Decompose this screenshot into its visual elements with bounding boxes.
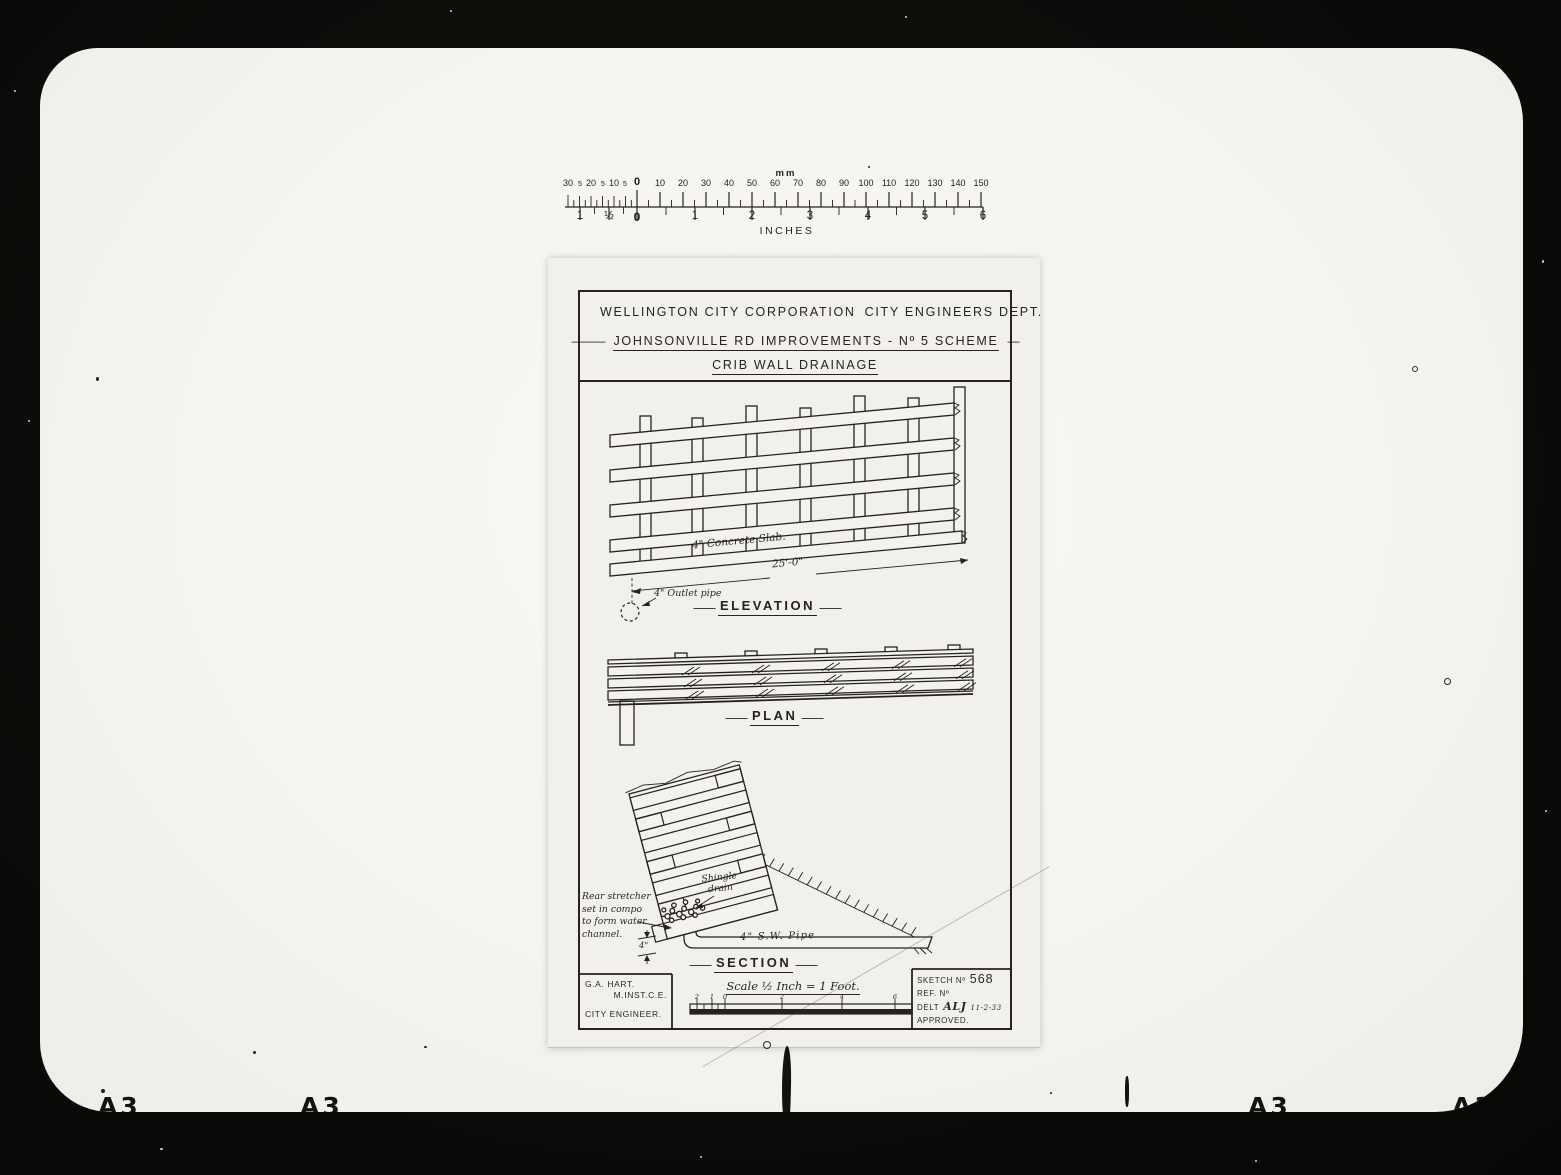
ruler-mm-tick-label: 5 xyxy=(601,181,605,188)
section-label: — SECTION — xyxy=(694,955,813,973)
elevation-label: — ELEVATION — xyxy=(698,598,837,616)
ruler-mm-tick-label: 20 xyxy=(678,178,688,188)
plan-label: — PLAN — xyxy=(730,708,819,726)
dust-speck xyxy=(101,1089,105,1093)
note-line: to form water xyxy=(582,916,651,929)
scalebar-tick-label: 0 xyxy=(723,993,727,1001)
dash-ornament: — xyxy=(796,957,818,972)
ruler-mm-tick-label: 50 xyxy=(747,178,757,188)
ruler-mm-tick-label: 130 xyxy=(927,178,942,188)
engineer-title: CITY ENGINEER. xyxy=(585,1009,669,1019)
delt-label: DELT xyxy=(917,1003,939,1012)
ruler-mm-tick-label: 90 xyxy=(839,178,849,188)
ruler-mm-tick-label: 100 xyxy=(858,178,873,188)
dash-ornament: — xyxy=(693,600,715,615)
ruler-inches-unit: INCHES xyxy=(760,225,815,237)
ruler-mm-tick-label: 70 xyxy=(793,178,803,188)
note-line: Rear stretcher xyxy=(582,891,651,904)
note-line: set in compo xyxy=(582,904,651,917)
film-dust xyxy=(1255,1160,1257,1162)
scalebar-tick-label: 2 xyxy=(695,993,699,1001)
ruler-mm-tick-label: 10 xyxy=(655,178,665,188)
reduction-ruler: mm 3052051050102030405060708090100110120… xyxy=(560,172,990,244)
dash-ornament: — xyxy=(802,710,824,725)
dust-speck xyxy=(868,166,870,168)
ruler-mm-tick-label: 30 xyxy=(563,178,573,188)
sketch-number-value: 568 xyxy=(970,972,994,986)
dust-speck xyxy=(763,1041,771,1049)
drawing-border-frame: WELLINGTON CITY CORPORATION CITY ENGINEE… xyxy=(578,290,1012,1030)
ruler-mm-tick-label: 140 xyxy=(950,178,965,188)
section-label-text: SECTION xyxy=(714,955,793,973)
elevation-drawing xyxy=(610,387,968,621)
delt-initials: ALJ xyxy=(943,1000,966,1013)
film-dust xyxy=(160,1148,163,1150)
ruler-mm-tick-label: 40 xyxy=(724,178,734,188)
outlet-pipe-note: 4" Outlet pipe xyxy=(654,588,721,599)
elevation-label-text: ELEVATION xyxy=(718,598,817,616)
film-border: mm 3052051050102030405060708090100110120… xyxy=(0,0,1561,1175)
rear-stretcher-note: Rear stretcherset in compoto form waterc… xyxy=(582,891,651,941)
sheet-size-mark: A3 xyxy=(1248,1092,1291,1112)
plan-label-text: PLAN xyxy=(750,708,799,726)
ruler-mm-tick-label: 30 xyxy=(701,178,711,188)
dash-ornament: — xyxy=(689,957,711,972)
ruler-mm-tick-label: 120 xyxy=(904,178,919,188)
ruler-mm-tick-label: 5 xyxy=(623,181,627,188)
note-line: channel. xyxy=(582,929,651,942)
ruler-inch-tick-label: 3 xyxy=(807,210,813,222)
scalebar-tick-label: 2 xyxy=(780,993,784,1001)
film-dust xyxy=(450,10,452,12)
ink-registration-mark xyxy=(781,1046,792,1112)
delt-date: 11-2-33 xyxy=(971,1004,1002,1012)
ref-number-label: REF. Nº xyxy=(917,989,949,998)
sheet-size-mark: A3 xyxy=(98,1092,141,1112)
scale-note: Scale ½ Inch = 1 Foot. xyxy=(698,979,888,993)
dust-speck xyxy=(1444,678,1451,685)
ruler-inch-tick-label: ½ xyxy=(604,210,614,222)
shingle-drain-note: Shingledrain xyxy=(701,871,739,896)
sketch-number-label: SKETCH Nº xyxy=(917,976,966,985)
film-dust xyxy=(14,90,16,92)
dust-speck xyxy=(253,1051,256,1054)
film-dust xyxy=(905,16,907,18)
drawing-sheet: WELLINGTON CITY CORPORATION CITY ENGINEE… xyxy=(548,258,1040,1048)
dash-ornament: — xyxy=(725,710,747,725)
ruler-mm-tick-label: 5 xyxy=(578,181,582,188)
scalebar-tick-label: 4 xyxy=(840,993,844,1001)
ruler-inch-tick-label: 0 xyxy=(634,210,641,224)
dash-ornament: — xyxy=(819,600,841,615)
ruler-inch-tick-label: 5 xyxy=(922,210,928,222)
sheet-size-mark: A3 xyxy=(1452,1092,1495,1112)
ruler-mm-tick-label: 80 xyxy=(816,178,826,188)
dust-speck xyxy=(1412,366,1418,372)
sheet-size-mark: A3 xyxy=(300,1092,343,1112)
ruler-mm-tick-label: 0 xyxy=(634,176,640,188)
ruler-mm-labels: 3052051050102030405060708090100110120130… xyxy=(560,178,990,198)
plan-drawing xyxy=(608,645,976,745)
stoneware-pipe-note: 4" S.W. Pipe xyxy=(740,930,816,943)
ruler-inch-tick-label: 1 xyxy=(692,210,698,222)
dust-speck xyxy=(1050,1092,1052,1094)
sketch-titleblock: SKETCH Nº 568 REF. Nº DELT ALJ 11-2-33 A… xyxy=(917,972,1011,1027)
ruler-mm-tick-label: 20 xyxy=(586,178,596,188)
film-dust xyxy=(28,420,30,422)
ruler-inch-tick-label: 2 xyxy=(749,210,755,222)
ruler-mm-tick-label: 150 xyxy=(973,178,988,188)
ink-registration-mark xyxy=(1125,1076,1129,1107)
scalebar-tick-label: 1 xyxy=(710,993,714,1001)
engineer-name: G.A. HART. xyxy=(585,979,669,989)
ruler-mm-tick-label: 10 xyxy=(609,178,619,188)
channel-depth-dimension: 4" xyxy=(639,941,648,951)
scalebar-tick-label: 6 xyxy=(893,993,897,1001)
dust-speck xyxy=(424,1046,427,1048)
ruler-inch-tick-label: 4 xyxy=(865,210,871,222)
dust-speck xyxy=(96,377,99,381)
approved-label: APPROVED. xyxy=(917,1016,969,1025)
film-dust xyxy=(700,1156,702,1158)
ruler-inch-tick-label: 1 xyxy=(577,210,583,222)
film-dust xyxy=(1545,810,1547,812)
ruler-mm-tick-label: 110 xyxy=(882,178,896,188)
ruler-inch-tick-label: 6 xyxy=(980,210,986,222)
film-dust xyxy=(1542,260,1544,263)
ruler-mm-tick-label: 60 xyxy=(770,178,780,188)
photo-paper: mm 3052051050102030405060708090100110120… xyxy=(40,48,1523,1112)
